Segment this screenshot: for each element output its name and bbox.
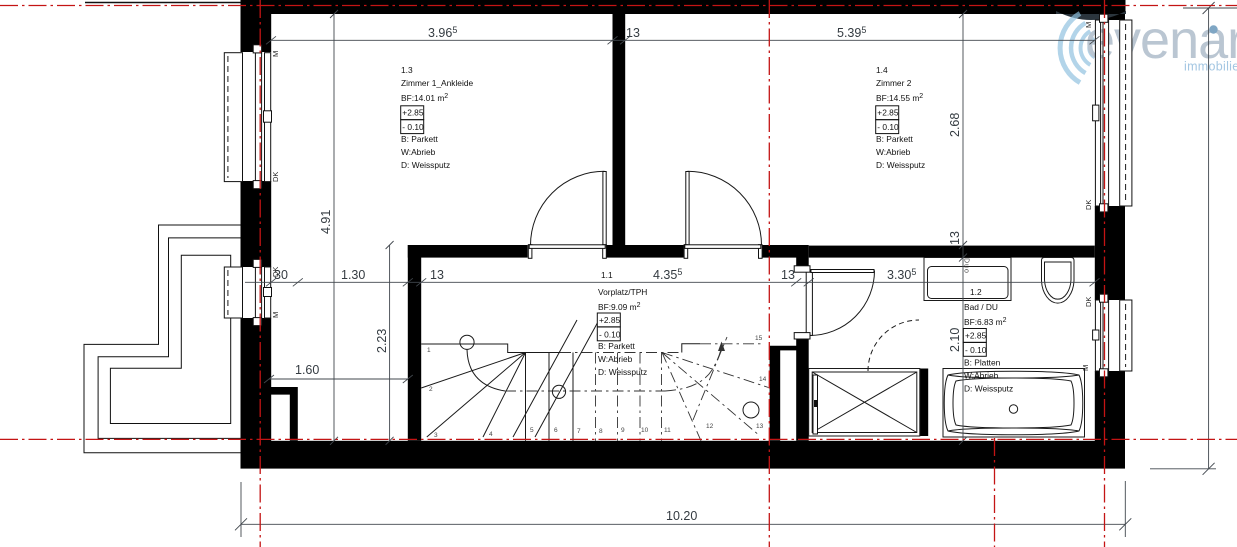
- svg-text:M: M: [271, 312, 280, 318]
- svg-text:- 0.10: - 0.10: [402, 122, 424, 132]
- svg-text:4.91: 4.91: [319, 210, 333, 234]
- svg-text:- 0.10: - 0.10: [599, 329, 621, 339]
- svg-text:M: M: [1084, 22, 1093, 28]
- svg-text:1: 1: [427, 347, 431, 354]
- svg-text:BF:14.01 m2: BF:14.01 m2: [401, 93, 448, 103]
- svg-text:12: 12: [706, 423, 714, 430]
- svg-text:DK: DK: [1084, 200, 1093, 210]
- svg-text:DK: DK: [271, 267, 280, 277]
- svg-text:5: 5: [530, 427, 534, 434]
- svg-text:1.30: 1.30: [341, 268, 365, 282]
- svg-text:DK: DK: [1084, 297, 1093, 307]
- svg-text:11: 11: [664, 427, 671, 434]
- svg-text:2.23: 2.23: [375, 329, 389, 353]
- svg-text:13: 13: [626, 26, 640, 40]
- svg-text:3: 3: [434, 432, 438, 439]
- svg-text:BF:9.09 m2: BF:9.09 m2: [598, 302, 641, 312]
- svg-text:7: 7: [577, 428, 581, 435]
- svg-text:+2.85: +2.85: [599, 315, 621, 325]
- svg-text:D: Weissputz: D: Weissputz: [598, 367, 647, 377]
- svg-text:BF:14.55 m2: BF:14.55 m2: [876, 93, 923, 103]
- svg-text:4: 4: [489, 431, 493, 438]
- svg-text:1.3: 1.3: [401, 65, 413, 75]
- svg-text:B: Parkett: B: Parkett: [401, 134, 438, 144]
- svg-text:Vorplatz/TPH: Vorplatz/TPH: [598, 287, 647, 297]
- svg-text:6: 6: [554, 427, 558, 434]
- svg-text:9: 9: [621, 427, 625, 434]
- svg-text:+2.85: +2.85: [877, 108, 899, 118]
- svg-text:10.20: 10.20: [666, 509, 697, 523]
- svg-text:1.4: 1.4: [876, 65, 888, 75]
- svg-text:+2.85: +2.85: [402, 108, 424, 118]
- svg-text:15: 15: [755, 335, 763, 342]
- svg-text:Duo: Duo: [963, 258, 970, 274]
- svg-text:Zimmer 2: Zimmer 2: [876, 78, 912, 88]
- svg-text:B: Parkett: B: Parkett: [598, 341, 635, 351]
- svg-text:14: 14: [759, 376, 767, 383]
- svg-text:1.1: 1.1: [601, 270, 613, 280]
- svg-text:+2.85: +2.85: [965, 330, 987, 340]
- svg-text:Zimmer 1_Ankleide: Zimmer 1_Ankleide: [401, 78, 473, 88]
- svg-text:B: Platten: B: Platten: [964, 358, 1001, 368]
- svg-text:M: M: [271, 51, 280, 57]
- svg-text:immobilien: immobilien: [1184, 60, 1237, 74]
- svg-text:8: 8: [599, 428, 603, 435]
- svg-text:2: 2: [429, 386, 433, 393]
- svg-text:Bad / DU: Bad / DU: [964, 302, 998, 312]
- svg-text:B: Parkett: B: Parkett: [876, 134, 913, 144]
- svg-text:D: Weissputz: D: Weissputz: [876, 160, 925, 170]
- svg-text:2.10: 2.10: [948, 328, 962, 352]
- svg-text:M: M: [1081, 365, 1090, 371]
- svg-text:- 0.10: - 0.10: [877, 122, 899, 132]
- svg-text:1.2: 1.2: [970, 287, 982, 297]
- svg-text:2.68: 2.68: [948, 113, 962, 137]
- svg-text:10: 10: [641, 427, 649, 434]
- svg-text:W:Abrieb: W:Abrieb: [598, 354, 633, 364]
- svg-text:D: Weissputz: D: Weissputz: [964, 384, 1013, 394]
- svg-text:W:Abrieb: W:Abrieb: [964, 371, 999, 381]
- svg-text:- 0.10: - 0.10: [965, 345, 987, 355]
- svg-text:13: 13: [430, 268, 444, 282]
- svg-text:DK: DK: [271, 172, 280, 182]
- svg-text:D: Weissputz: D: Weissputz: [401, 160, 450, 170]
- svg-text:W:Abrieb: W:Abrieb: [876, 147, 911, 157]
- svg-text:13: 13: [948, 231, 962, 245]
- svg-text:1.60: 1.60: [295, 363, 319, 377]
- svg-text:W:Abrieb: W:Abrieb: [401, 147, 436, 157]
- svg-text:BF:6.83 m2: BF:6.83 m2: [964, 317, 1007, 327]
- svg-text:13: 13: [781, 268, 795, 282]
- svg-text:13: 13: [756, 423, 764, 430]
